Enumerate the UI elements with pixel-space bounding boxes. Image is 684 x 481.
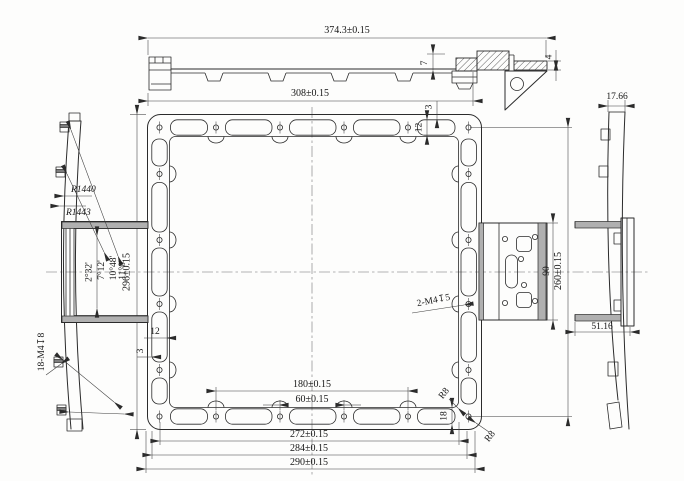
radius-callout-r1440-label: R1440	[70, 185, 96, 195]
dim-slot-length-18-label: 18	[440, 411, 450, 421]
dim-span-272-label: 272±0.15	[290, 429, 328, 440]
dim-hole-row-span-label: 260±0.15	[553, 252, 564, 290]
dim-wall-left-label: 3	[136, 348, 146, 353]
thread-note-18-m4-label: 18-M4↧8	[37, 332, 47, 371]
paper-background	[0, 0, 684, 481]
dim-angle-1-label: 2°32'	[84, 262, 95, 282]
dim-slot-width-top-label: 12	[415, 123, 425, 133]
dim-span-284-label: 284±0.15	[290, 443, 328, 454]
dim-angle-2-label: 7°12'	[96, 260, 107, 280]
drawing-canvas: 374.3±0.15 308±0.15 7 4	[0, 0, 684, 481]
dim-flange-thickness-label: 4	[545, 54, 555, 59]
dim-right-bottom-width-label: 51.16	[591, 322, 613, 332]
dim-hole-span-60-label: 60±0.15	[296, 394, 329, 405]
dim-slot-width-left-label: 12	[150, 327, 160, 337]
dim-step-height-label: 7	[420, 60, 430, 65]
dim-plate-height-label: 90	[542, 266, 552, 276]
dim-angle-4-label: 11°0'	[117, 260, 128, 280]
dim-total-length-label: 374.3±0.15	[324, 25, 370, 36]
dim-span-290-label: 290±0.15	[290, 457, 328, 468]
dim-body-length-label: 308±0.15	[291, 88, 329, 99]
technical-drawing: 374.3±0.15 308±0.15 7 4	[0, 0, 684, 481]
dim-hole-span-180-label: 180±0.15	[293, 379, 331, 390]
dim-wall-top-label: 3	[425, 104, 435, 109]
dim-right-top-width-label: 17.66	[606, 92, 628, 102]
radius-callout-r1443-label: R1443	[65, 208, 91, 218]
